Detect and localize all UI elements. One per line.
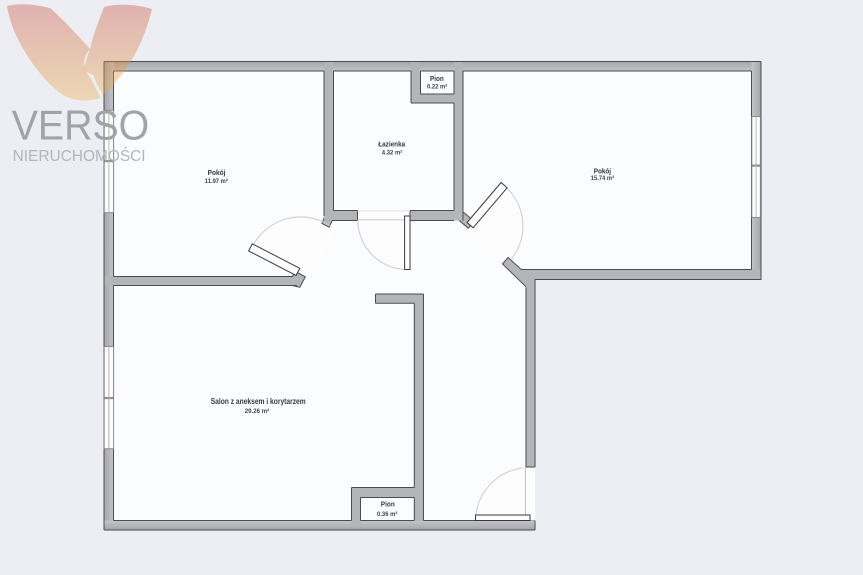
svg-text:4.32 m²: 4.32 m² xyxy=(382,149,402,156)
svg-text:Salon z aneksem i korytarzem: Salon z aneksem i korytarzem xyxy=(211,396,306,406)
svg-text:15.74 m²: 15.74 m² xyxy=(591,175,614,182)
svg-text:11.97 m²: 11.97 m² xyxy=(205,178,228,185)
svg-text:29.26 m²: 29.26 m² xyxy=(245,408,269,415)
svg-text:Pion: Pion xyxy=(430,76,444,83)
svg-text:Łazienka: Łazienka xyxy=(378,139,406,148)
svg-text:0.36 m²: 0.36 m² xyxy=(377,511,397,518)
svg-text:VERSO: VERSO xyxy=(12,101,150,148)
svg-text:0.22 m²: 0.22 m² xyxy=(427,84,447,91)
svg-text:Pion: Pion xyxy=(381,502,395,509)
svg-text:Pokój: Pokój xyxy=(208,168,226,177)
svg-text:NIERUCHOMOŚCI: NIERUCHOMOŚCI xyxy=(13,146,146,165)
